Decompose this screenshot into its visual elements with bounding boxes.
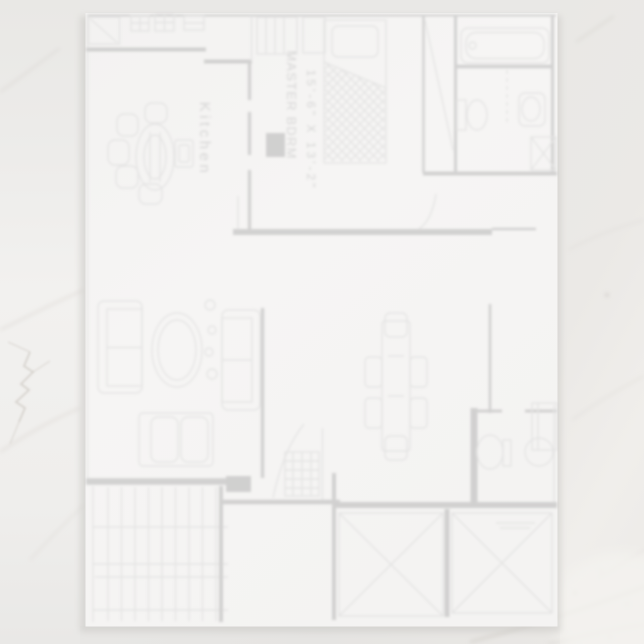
svg-text:Kitchen: Kitchen bbox=[196, 102, 213, 177]
svg-text:15'-6" X 13'-2": 15'-6" X 13'-2" bbox=[304, 70, 318, 191]
svg-text:MASTER BDRM: MASTER BDRM bbox=[284, 50, 299, 159]
